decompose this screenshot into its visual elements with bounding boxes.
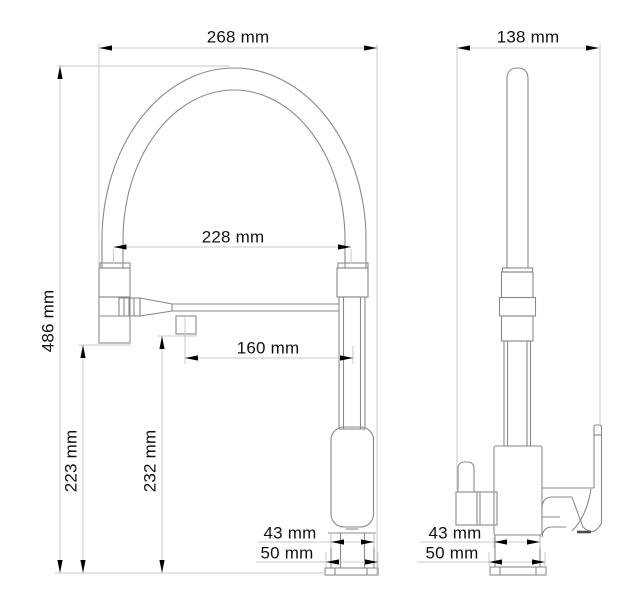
dim-label-overall-width-front: 268 mm [207,29,270,46]
dim-label-spray-head-height: 223 mm [63,430,80,493]
drawing-svg [0,0,635,600]
faucet-column [339,297,365,429]
dim-label-outlet-height: 232 mm [142,430,159,493]
base-plate-side [490,567,546,575]
dim-label-hose-span: 228 mm [202,229,265,246]
spray-holder-tab [458,462,474,492]
column-collar [337,268,368,297]
handle-lever [594,425,602,523]
base-plate-front [325,568,378,575]
body-side [494,446,542,535]
wand-tube [507,68,528,268]
dim-label-overall-height: 486 mm [40,290,57,353]
handle-crease [572,489,591,531]
spray-head-body [99,297,130,343]
technical-drawing-canvas: 268 mm 138 mm 228 mm 160 mm 486 mm 223 m… [0,0,635,600]
wand-collar [502,272,534,298]
column-lip [338,263,368,268]
spray-lip [100,263,130,268]
dim-label-overall-depth-side: 138 mm [497,29,560,46]
wand-lip [503,268,533,272]
front-view-outline [99,68,378,575]
dim-label-body-width-front: 43 mm [264,525,317,542]
dimension-arrows [57,45,599,573]
side-view-outline [456,68,602,575]
aerator [176,316,196,334]
spray-collar [99,268,130,297]
dim-label-body-width-side: 43 mm [429,525,482,542]
nozzle-cone [140,298,172,316]
wand-ring [500,298,536,317]
wand-block [502,316,534,341]
handle-body-front [331,427,374,527]
dim-label-spout-reach: 160 mm [237,340,300,357]
dim-label-base-width-front: 50 mm [261,545,314,562]
dim-label-base-width-side: 50 mm [426,545,479,562]
